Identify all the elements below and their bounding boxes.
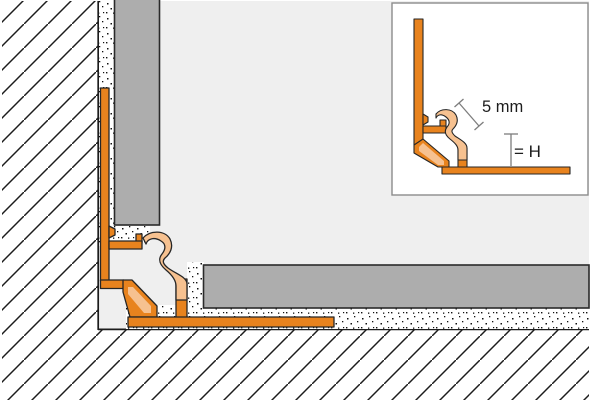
profile-step [101,280,124,289]
inset-wall-leg [414,19,423,145]
inset-support-arm [423,126,446,133]
inset-detail-box: 5 mm = H [392,3,588,195]
technical-drawing-page: 5 mm = H [0,0,600,400]
corner-profile-diagram: 5 mm = H [0,0,600,400]
dimension-5mm-label: 5 mm [482,98,523,116]
dimension-height-label: = H [514,142,541,161]
floor-tile [204,265,590,308]
wall-tile [115,0,160,225]
profile-floor-anchoring-leg [128,317,334,327]
profile-support-arm [109,241,142,249]
mortar-left-of-floor-tile [187,262,204,308]
inset-floor-leg [442,167,570,174]
profile-wall-anchoring-leg [101,88,110,281]
